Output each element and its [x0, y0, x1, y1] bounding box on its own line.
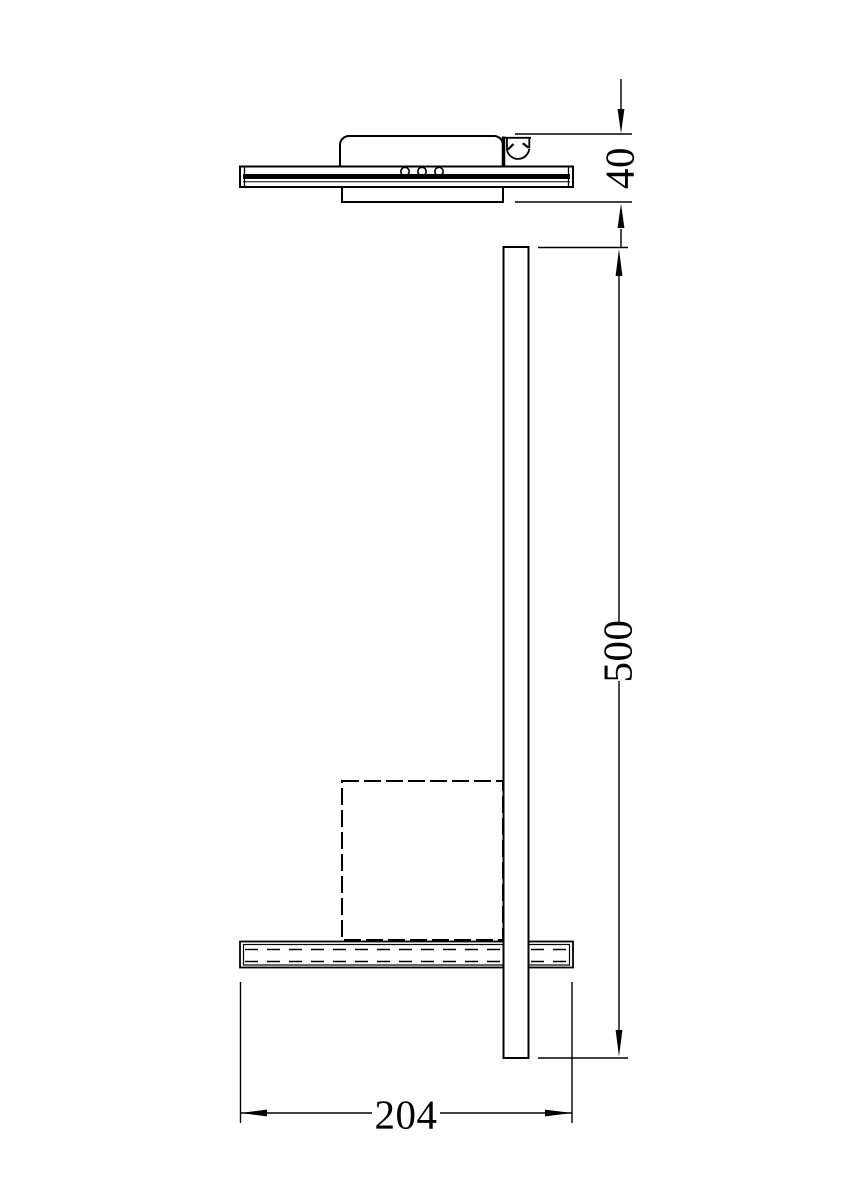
technical-drawing-canvas: 40 500 204 — [0, 0, 848, 1200]
mounting-box — [340, 136, 504, 167]
vertical-arm — [504, 247, 529, 1058]
cable-clamp — [505, 138, 532, 159]
driver-box-dashed — [342, 781, 503, 940]
canopy-lower-plate — [342, 187, 503, 202]
dim-label-arm-length: 500 — [598, 620, 639, 683]
dim-label-canopy-height: 40 — [600, 147, 641, 189]
drawing-linework — [0, 0, 848, 1200]
canopy-light-bar — [240, 167, 573, 188]
dim-label-plate-length: 204 — [375, 1095, 438, 1136]
